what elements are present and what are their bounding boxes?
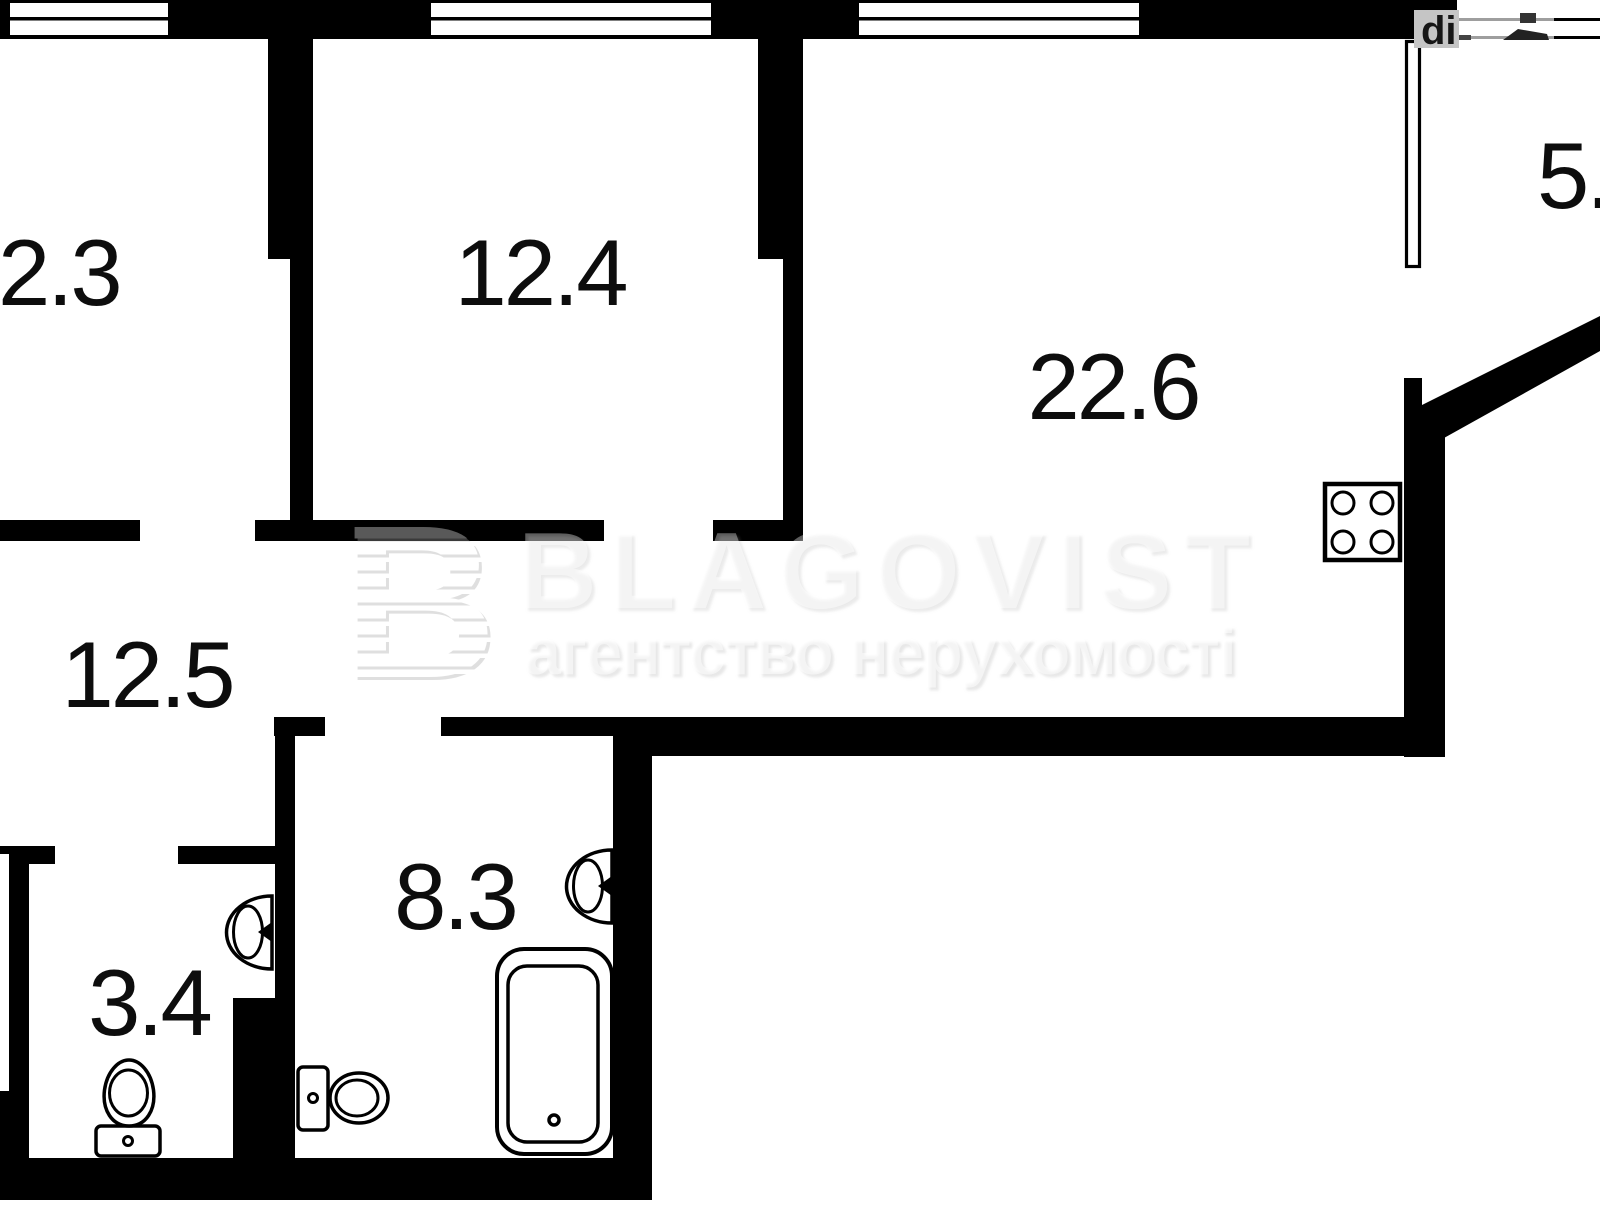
svg-text:5.: 5. bbox=[1537, 123, 1600, 228]
svg-text:12.5: 12.5 bbox=[62, 622, 233, 727]
svg-text:12.4: 12.4 bbox=[455, 220, 627, 325]
svg-text:2.3: 2.3 bbox=[0, 220, 120, 325]
svg-text:22.6: 22.6 bbox=[1028, 334, 1199, 439]
svg-text:B: B bbox=[340, 481, 497, 724]
svg-text:3.4: 3.4 bbox=[88, 950, 210, 1055]
svg-text:агентство нерухомості: агентство нерухомості bbox=[524, 614, 1235, 688]
svg-text:8.3: 8.3 bbox=[394, 844, 516, 949]
svg-text:di: di bbox=[1421, 9, 1457, 53]
